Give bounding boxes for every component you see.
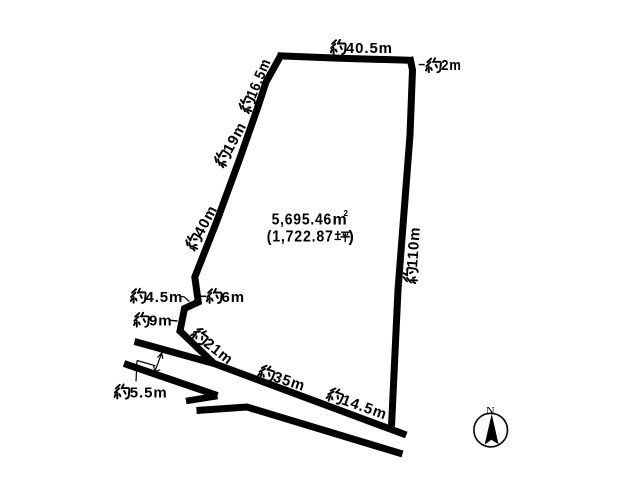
svg-text:5.5m: 5.5m — [130, 385, 168, 402]
svg-text:2: 2 — [344, 209, 349, 218]
svg-text:6m: 6m — [222, 289, 245, 306]
svg-text:N: N — [486, 404, 495, 418]
svg-text:): ) — [349, 229, 355, 246]
svg-text:40.5m: 40.5m — [346, 40, 393, 57]
svg-text:4.5m: 4.5m — [146, 289, 184, 306]
svg-text:(1,722.87: (1,722.87 — [267, 229, 334, 246]
svg-text:110m: 110m — [404, 226, 424, 268]
svg-text:5,695.46: 5,695.46 — [272, 211, 333, 228]
svg-text:2m: 2m — [441, 57, 462, 74]
svg-text:9m: 9m — [149, 313, 172, 330]
